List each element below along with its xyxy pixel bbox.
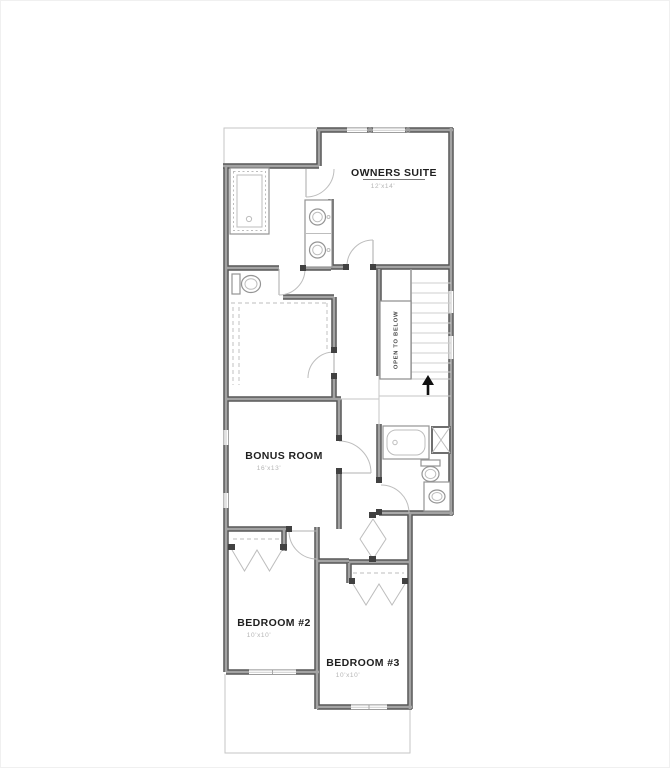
open-to-below-box: OPEN TO BELOW — [380, 301, 411, 379]
bonus-room-window-2 — [223, 493, 229, 508]
stairs-up-arrow-icon — [422, 375, 434, 395]
roofline-top-left — [224, 128, 317, 164]
owners-toilet — [232, 274, 261, 294]
bath2-vanity — [424, 482, 450, 511]
stair-treads — [411, 283, 451, 372]
walk-in-closet-door — [308, 352, 334, 378]
bedroom2-dim: 10'x10' — [247, 632, 271, 639]
bonus-room-door — [339, 441, 371, 473]
toilet-tank — [232, 274, 240, 294]
bathtub — [383, 426, 429, 459]
toilet-room-door — [279, 269, 305, 295]
walk-in-shower — [230, 168, 269, 234]
bath2-toilet — [421, 460, 440, 482]
bedroom2-door — [289, 531, 317, 559]
owners-suite-label: OWNERS SUITE — [351, 167, 437, 179]
toilet-tank — [421, 460, 440, 466]
owners-suite-dim: 12'x14' — [371, 183, 395, 190]
double-vanity — [305, 200, 332, 267]
bedroom2-label: BEDROOM #2 — [237, 617, 310, 629]
bonus-room-dim: 16'x13' — [257, 465, 281, 472]
floor-plan-drawing: OPEN TO BELOW — [1, 1, 670, 768]
bedroom3-bifold-entry-door — [360, 519, 386, 559]
bath2 — [383, 426, 450, 511]
right-wall-window-1 — [448, 291, 454, 313]
bonus-room-label: BONUS ROOM — [245, 450, 323, 462]
right-wall-window-2 — [448, 336, 454, 359]
walk-in-closet — [231, 303, 327, 385]
staircase: OPEN TO BELOW — [379, 269, 451, 424]
bedroom3-window — [351, 704, 387, 710]
owners-bath — [230, 168, 332, 294]
bedroom3-label: BEDROOM #3 — [326, 657, 399, 669]
open-to-below-label: OPEN TO BELOW — [394, 311, 400, 369]
owners-suite-window-2 — [373, 127, 410, 133]
stair-landing-lines — [379, 376, 451, 424]
bedroom3-closet-bifold-doors — [353, 573, 405, 605]
closet-shelf-lines — [231, 303, 327, 385]
linen-closet — [432, 427, 450, 453]
bedroom2-window — [249, 669, 296, 675]
bedroom3-dim: 10'x10' — [336, 672, 360, 679]
bath2-door — [381, 485, 409, 513]
bedroom2-closet-bifold-doors — [232, 539, 282, 571]
owners-bath-door — [306, 169, 334, 197]
floor-plan-page: OPEN TO BELOW — [0, 0, 670, 768]
bonus-room-window-1 — [223, 430, 229, 445]
owners-suite-door — [347, 240, 373, 266]
